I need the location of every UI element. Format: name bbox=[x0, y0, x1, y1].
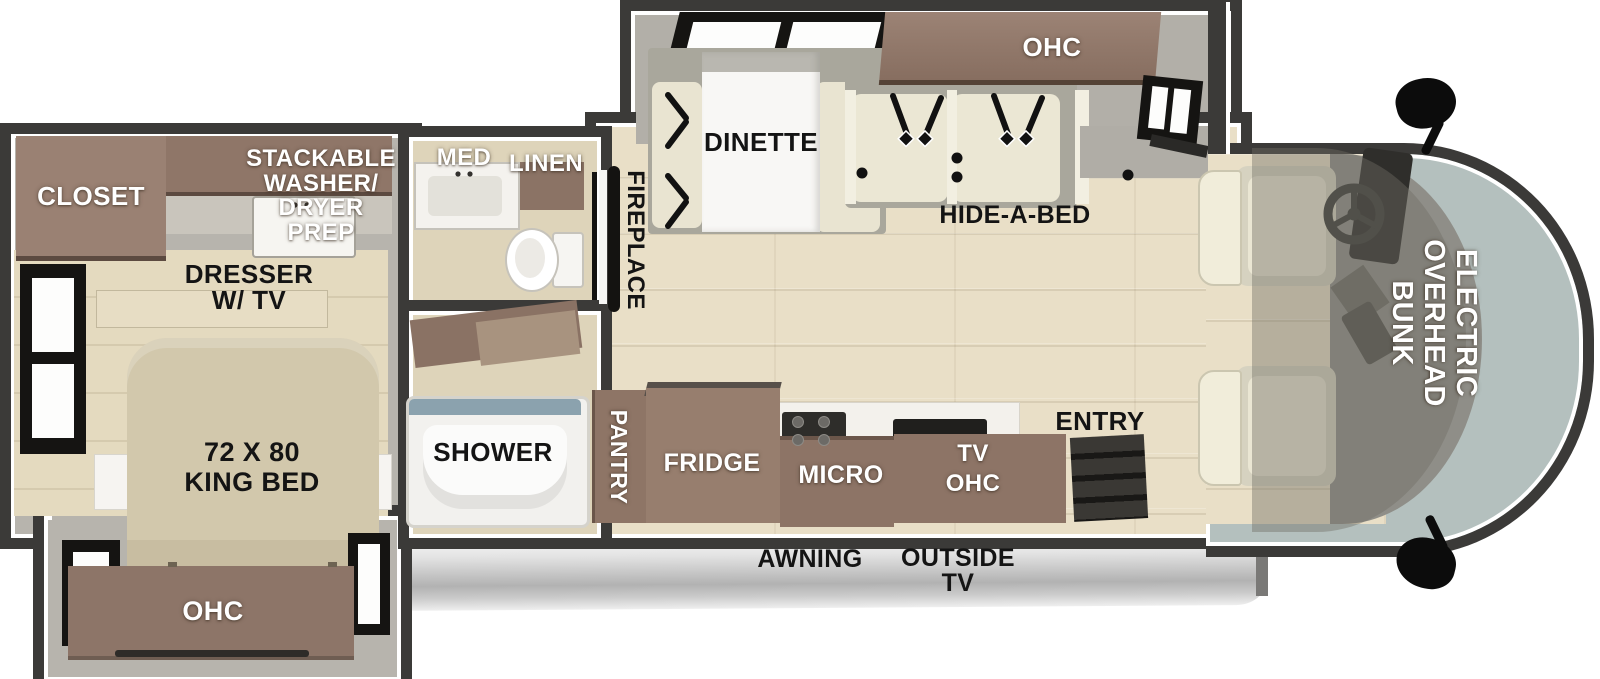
corner-window bbox=[1137, 75, 1203, 145]
awning-label: AWNING bbox=[728, 546, 892, 573]
washer-dryer-prep-label: STACKABLE WASHER/ DRYER PREP bbox=[238, 147, 404, 246]
living-ohc-label: OHC bbox=[990, 34, 1114, 62]
hide-a-bed-cushion-right bbox=[952, 94, 1060, 202]
shower-rim bbox=[409, 399, 581, 415]
shower-label: SHOWER bbox=[412, 439, 574, 467]
toilet-bowl-icon bbox=[505, 228, 559, 292]
pantry-label: PANTRY bbox=[605, 395, 631, 519]
dinette-label: DINETTE bbox=[680, 129, 842, 157]
hide-a-bed-armrest-left bbox=[845, 90, 856, 204]
micro-label: MICRO bbox=[770, 462, 912, 489]
dresser-tv-label: DRESSER W/ TV bbox=[158, 261, 340, 313]
linen-label: LINEN bbox=[498, 151, 594, 176]
king-bed-label: 72 X 80 KING BED bbox=[150, 437, 354, 497]
fireplace-label: FIREPLACE bbox=[620, 155, 648, 325]
entry-steps bbox=[1070, 434, 1148, 522]
fireplace-icon bbox=[592, 166, 620, 312]
nightstand-left bbox=[94, 454, 130, 510]
bedroom-left-window bbox=[20, 264, 86, 454]
passenger-seat-headrest bbox=[1198, 370, 1242, 486]
bedroom-slide-right-window bbox=[348, 533, 390, 635]
closet-label: CLOSET bbox=[16, 183, 166, 211]
bedroom-ohc-trim bbox=[115, 650, 309, 657]
hide-a-bed-label: HIDE-A-BED bbox=[920, 202, 1110, 229]
outside-tv-label: OUTSIDE TV bbox=[886, 546, 1030, 596]
bedroom-ohc-label: OHC bbox=[152, 597, 274, 626]
vanity-basin bbox=[428, 176, 502, 216]
side-mirror-top-icon bbox=[1391, 71, 1461, 134]
body-end-wall bbox=[1208, 2, 1230, 154]
hide-a-bed-cushion-left bbox=[851, 94, 948, 202]
hide-a-bed-armrest-mid bbox=[947, 90, 957, 204]
fridge-label: FRIDGE bbox=[641, 450, 783, 477]
rv-floorplan: CLOSET STACKABLE WASHER/ DRYER PREP DRES… bbox=[0, 0, 1600, 679]
tv-ohc-label: TV OHC bbox=[912, 439, 1034, 499]
electric-overhead-bunk-label: ELECTRIC OVERHEAD BUNK bbox=[1375, 221, 1481, 425]
med-label: MED bbox=[424, 145, 504, 170]
entry-label: ENTRY bbox=[1030, 408, 1170, 436]
driver-seat-headrest bbox=[1198, 170, 1242, 286]
